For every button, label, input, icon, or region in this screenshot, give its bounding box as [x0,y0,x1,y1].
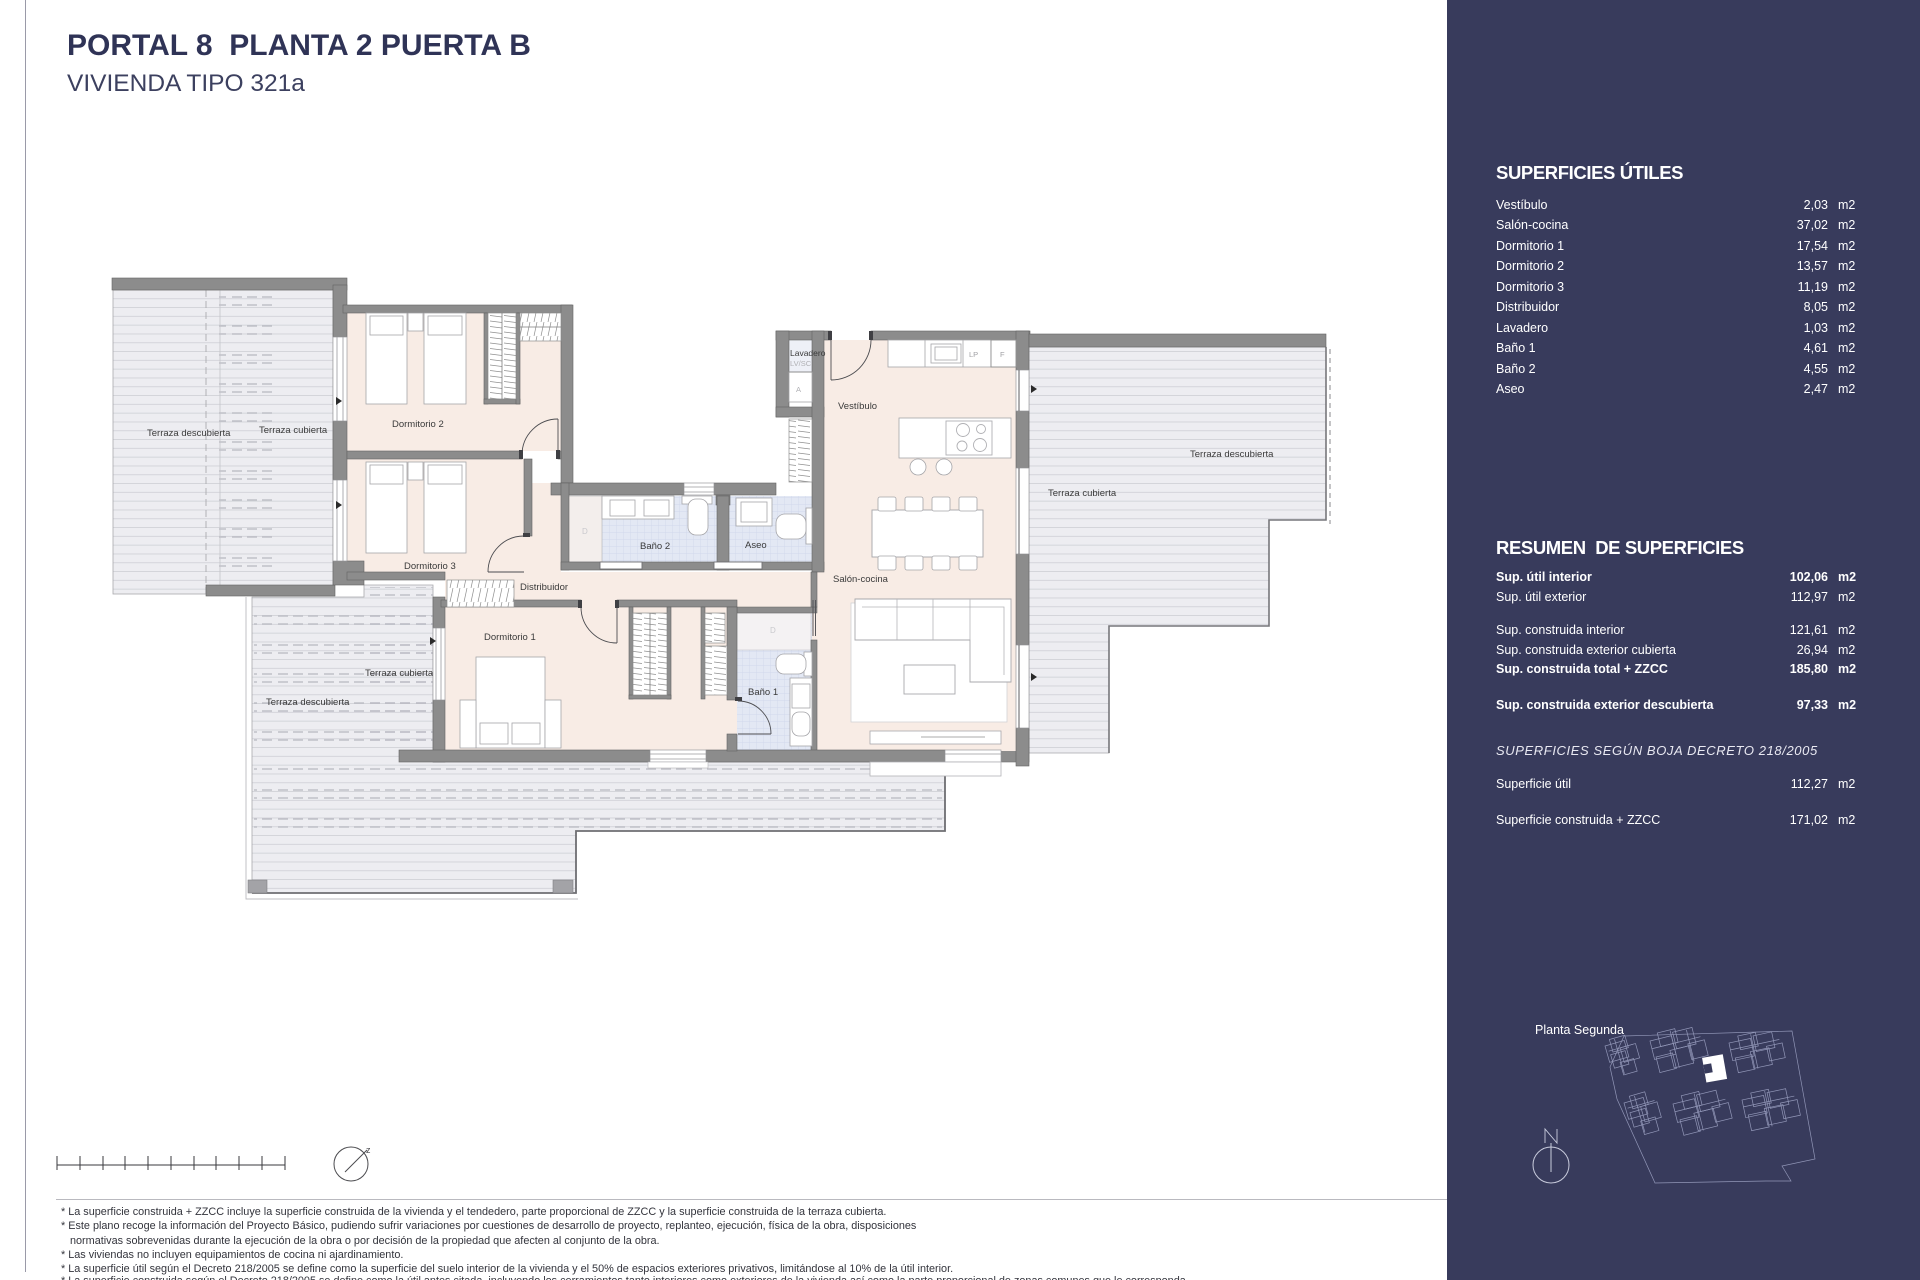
svg-text:Distribuidor: Distribuidor [520,582,568,593]
svg-text:F: F [1000,350,1005,359]
svg-text:Terraza cubierta: Terraza cubierta [365,668,434,679]
svg-text:D: D [582,527,588,536]
svg-text:Terraza cubierta: Terraza cubierta [1048,488,1117,499]
svg-text:Salón-cocina: Salón-cocina [833,574,889,585]
svg-text:Terraza descubierta: Terraza descubierta [147,428,231,439]
svg-text:Terraza descubierta: Terraza descubierta [266,697,350,708]
svg-text:Baño 2: Baño 2 [640,541,670,552]
svg-text:A: A [796,385,801,394]
svg-text:Lavadero: Lavadero [790,348,826,358]
svg-text:Dormitorio 3: Dormitorio 3 [404,561,456,572]
svg-text:LV/SC: LV/SC [790,359,812,368]
svg-text:Dormitorio 1: Dormitorio 1 [484,632,536,643]
svg-text:D: D [770,626,776,635]
svg-text:z: z [366,1145,371,1155]
svg-text:Terraza cubierta: Terraza cubierta [259,425,328,436]
svg-text:Vestíbulo: Vestíbulo [838,401,877,412]
svg-text:Baño 1: Baño 1 [748,687,778,698]
svg-text:Terraza descubierta: Terraza descubierta [1190,449,1274,460]
svg-text:Dormitorio 2: Dormitorio 2 [392,419,444,430]
svg-text:Aseo: Aseo [745,540,767,551]
svg-text:LP: LP [969,350,978,359]
